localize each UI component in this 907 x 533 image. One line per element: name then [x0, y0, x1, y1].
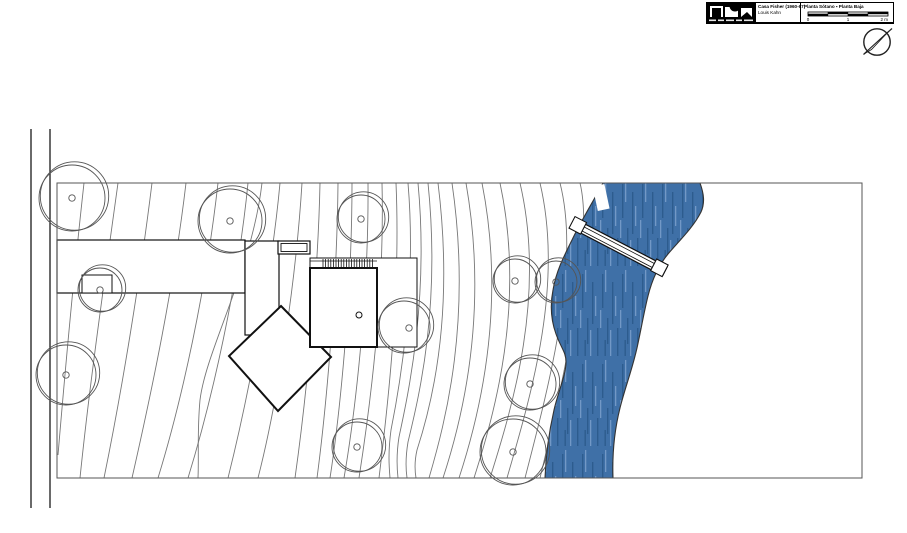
site-plan-drawing	[0, 0, 907, 533]
drawing-sheet: Casa Fisher (1960-67) Louis Kahn Planta …	[0, 0, 907, 533]
